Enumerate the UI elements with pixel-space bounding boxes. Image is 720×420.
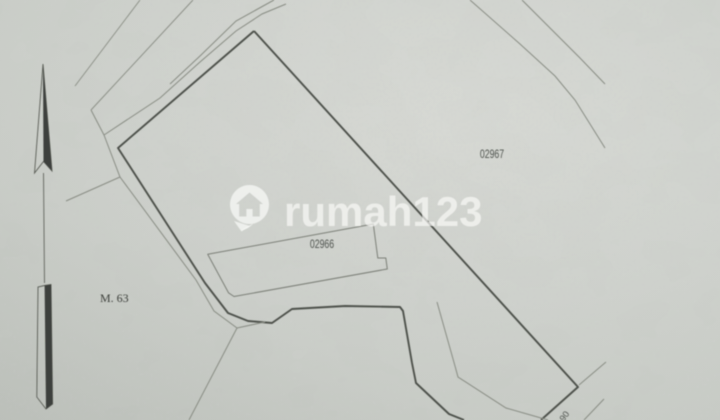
svg-text:02966: 02966 (310, 239, 335, 251)
svg-text:M. 63: M. 63 (100, 291, 129, 305)
svg-text:02967: 02967 (480, 149, 505, 161)
svg-text:rumah123: rumah123 (284, 188, 482, 235)
